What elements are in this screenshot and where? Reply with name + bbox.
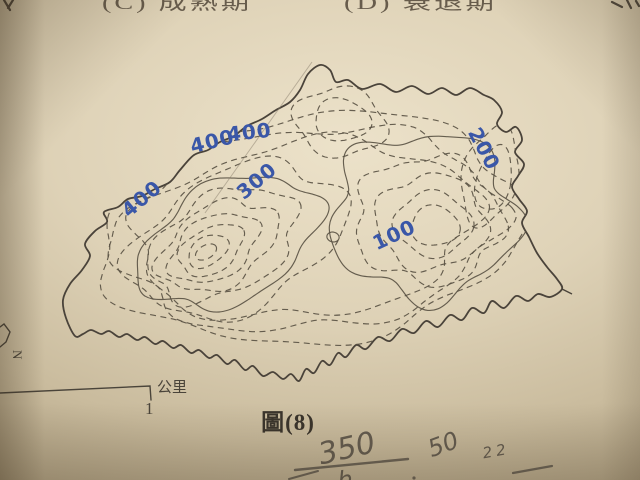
- contour-line: [100, 110, 532, 345]
- scale-bar-line: [0, 386, 151, 400]
- figure-caption: 圖(8): [261, 410, 315, 435]
- elevation-label-400-b: 400: [226, 118, 273, 147]
- elevation-label-400-west: 400: [117, 175, 167, 222]
- pencil-stroke-left: [289, 471, 318, 479]
- option-d-label: (D) 衰退期: [344, 0, 497, 14]
- handwritten-fraction-denominator: h: [337, 465, 355, 480]
- contour-map: 400 400 400 300 200 100: [63, 62, 572, 381]
- north-arrow: N: [0, 324, 25, 360]
- contour-line: [177, 225, 244, 277]
- partial-glyph-left: [4, 0, 13, 10]
- pencil-dot: [412, 476, 415, 479]
- contour-line: [327, 232, 339, 242]
- handwritten-notes: 350 h 50 22: [289, 425, 552, 480]
- option-c-label: (C) 成熟期: [102, 0, 252, 14]
- handwritten-fifty: 50: [424, 426, 462, 463]
- island-coastline: [63, 65, 562, 381]
- handwritten-twentytwo: 22: [481, 440, 511, 462]
- contour-line: [108, 124, 516, 331]
- contour-line: [316, 98, 372, 141]
- photographed-textbook-page: (C) 成熟期 (D) 衰退期 400 400 400 300 200 100 …: [0, 0, 640, 480]
- coastline-tail-mark: [562, 289, 572, 294]
- contour-line: [152, 198, 279, 292]
- scale-bar: 公里 1: [0, 379, 187, 418]
- scale-unit-label: 公里: [157, 379, 187, 396]
- contour-line: [196, 244, 217, 260]
- contour-line: [356, 153, 508, 287]
- north-label: N: [10, 350, 25, 360]
- page-scene: (C) 成熟期 (D) 衰退期 400 400 400 300 200 100 …: [0, 0, 640, 480]
- contour-line: [166, 214, 262, 283]
- contour-line: [189, 235, 229, 268]
- pencil-stroke-right: [513, 466, 552, 473]
- north-arrow-icon: [0, 324, 10, 347]
- contour-lines: [100, 86, 532, 346]
- scale-value-label: 1: [145, 399, 154, 418]
- top-question-options: (C) 成熟期 (D) 衰退期: [4, 0, 639, 14]
- partial-glyph-right: [612, 0, 639, 8]
- contour-line: [412, 205, 461, 245]
- elevation-label-200: 200: [463, 123, 505, 174]
